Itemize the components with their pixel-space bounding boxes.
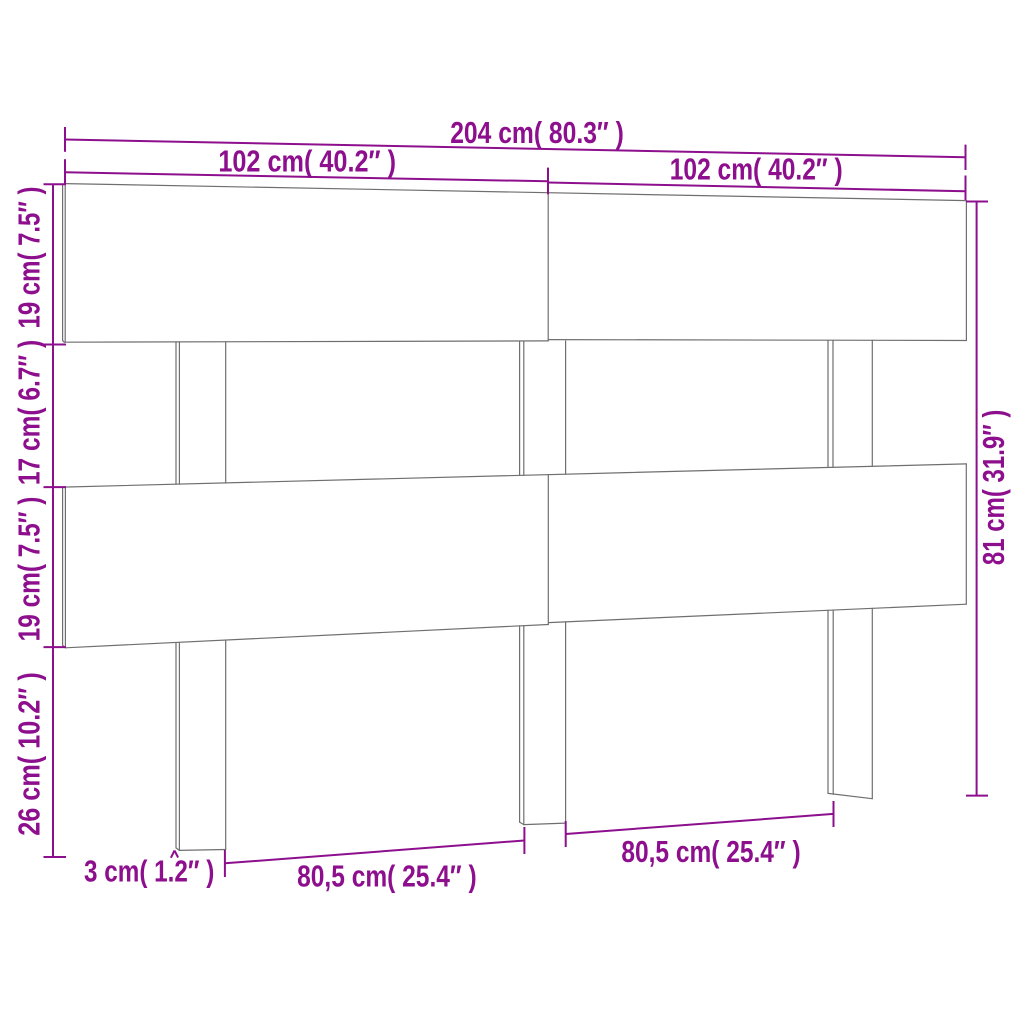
svg-text:19 cm( 7.5″ ): 19 cm( 7.5″ ): [12, 187, 47, 329]
svg-text:19 cm( 7.5″ ): 19 cm( 7.5″ ): [12, 497, 47, 642]
svg-text:81 cm( 31.9″ ): 81 cm( 31.9″ ): [976, 410, 1011, 566]
svg-text:204 cm( 80.3″ ): 204 cm( 80.3″ ): [450, 115, 624, 150]
svg-text:80,5 cm( 25.4″ ): 80,5 cm( 25.4″ ): [297, 859, 477, 894]
svg-text:17 cm( 6.7″ ): 17 cm( 6.7″ ): [12, 340, 47, 485]
svg-text:102 cm( 40.2″ ): 102 cm( 40.2″ ): [670, 152, 843, 187]
svg-text:80,5 cm( 25.4″ ): 80,5 cm( 25.4″ ): [621, 834, 800, 869]
svg-text:26 cm( 10.2″ ): 26 cm( 10.2″ ): [12, 672, 47, 836]
svg-text:102 cm( 40.2″ ): 102 cm( 40.2″ ): [218, 143, 396, 178]
svg-text:3 cm( 1.2″ ): 3 cm( 1.2″ ): [84, 854, 214, 889]
